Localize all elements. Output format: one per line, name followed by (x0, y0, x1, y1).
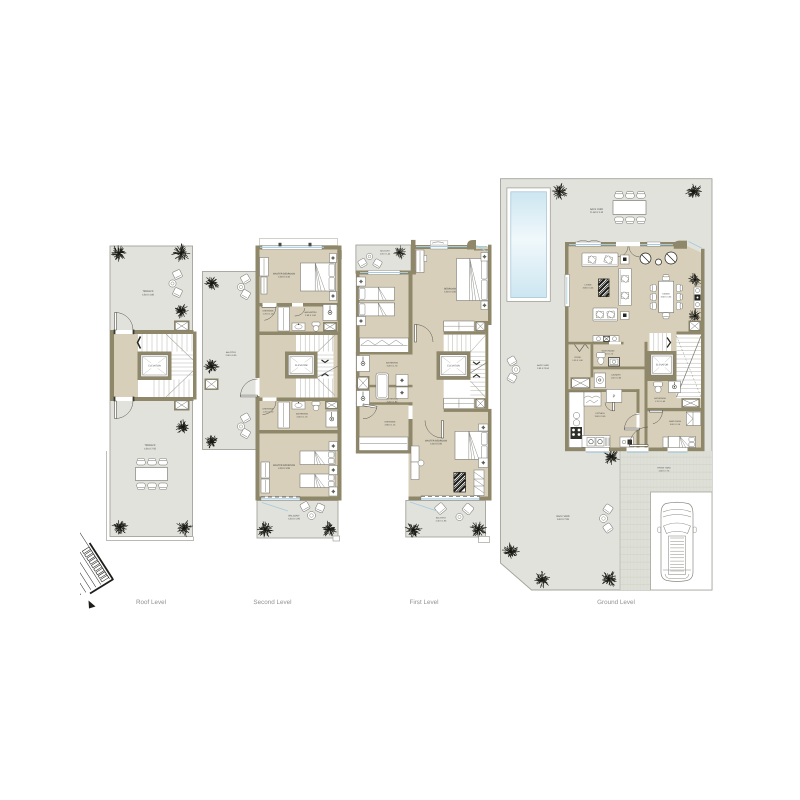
svg-text:4.30 X 4.05: 4.30 X 4.05 (444, 291, 456, 294)
svg-text:4.30 X 3.10: 4.30 X 3.10 (278, 276, 290, 279)
svg-text:3.00 X 2.15: 3.00 X 2.15 (670, 423, 681, 426)
svg-text:2.90 X 1.75: 2.90 X 1.75 (385, 424, 396, 427)
svg-text:3.60 X 4.35: 3.60 X 4.35 (661, 296, 672, 299)
svg-text:2.50 X 1.50: 2.50 X 1.50 (305, 314, 316, 317)
svg-text:ELEVATOR: ELEVATOR (656, 364, 669, 367)
svg-text:First Level: First Level (409, 599, 438, 606)
svg-text:BATHROOM: BATHROOM (296, 412, 308, 415)
svg-text:DRESSING: DRESSING (263, 407, 274, 410)
svg-text:1.70 X 1.60: 1.70 X 1.60 (655, 400, 666, 403)
svg-text:DRESSING: DRESSING (385, 420, 396, 423)
svg-text:1.30 X 1.90: 1.30 X 1.90 (572, 359, 583, 362)
svg-text:3.60 X 23.50: 3.60 X 23.50 (537, 367, 550, 370)
svg-text:3.60 X 3.40: 3.60 X 3.40 (595, 415, 606, 418)
svg-text:4.50 X 7.55: 4.50 X 7.55 (144, 447, 156, 450)
svg-text:9.40 X 7.95: 9.40 X 7.95 (557, 518, 569, 521)
svg-text:Roof Level: Roof Level (136, 599, 166, 606)
svg-text:DINING: DINING (662, 292, 670, 295)
svg-text:BATHROOM: BATHROOM (654, 397, 666, 400)
svg-text:WASH ROOM: WASH ROOM (602, 349, 615, 352)
svg-text:1.70 X 1.10: 1.70 X 1.10 (263, 313, 274, 316)
svg-text:2.05 X 1.45: 2.05 X 1.45 (380, 253, 391, 256)
svg-text:ELEVATOR: ELEVATOR (148, 365, 161, 368)
svg-text:BALCONY: BALCONY (436, 516, 447, 519)
svg-text:BALCONY: BALCONY (380, 249, 390, 252)
svg-text:BACK YARD: BACK YARD (590, 208, 603, 211)
svg-text:2.00 X 6.00: 2.00 X 6.00 (226, 354, 237, 357)
svg-text:2.50 X 1.70: 2.50 X 1.70 (297, 416, 308, 419)
svg-text:3.20 X 1.80: 3.20 X 1.80 (387, 401, 398, 404)
svg-text:BEDROOM: BEDROOM (444, 287, 456, 290)
svg-text:TERRACE: TERRACE (143, 290, 154, 293)
svg-text:ELEVATOR: ELEVATOR (295, 364, 308, 367)
svg-text:BACK YARD: BACK YARD (556, 515, 569, 518)
svg-text:BALCONY: BALCONY (289, 514, 300, 517)
svg-text:4.30 X 5.50: 4.30 X 5.50 (430, 443, 442, 446)
svg-text:MASTER BEDROOM: MASTER BEDROOM (425, 439, 447, 442)
svg-text:4.40 X 1.95: 4.40 X 1.95 (288, 518, 300, 521)
svg-text:BATHROOM: BATHROOM (386, 361, 398, 364)
svg-text:4.50 X 7.75: 4.50 X 7.75 (659, 470, 670, 473)
svg-text:BACK YARD: BACK YARD (537, 364, 549, 367)
svg-text:DRESSING: DRESSING (263, 309, 274, 312)
svg-text:MAID ROOM: MAID ROOM (669, 420, 681, 423)
svg-text:P: P (613, 394, 616, 399)
svg-text:LAUNDRY: LAUNDRY (611, 373, 621, 376)
svg-text:MASTER BEDROOM: MASTER BEDROOM (273, 272, 295, 275)
svg-text:FRONT YARD: FRONT YARD (657, 466, 671, 469)
svg-text:4.45 X 1.95: 4.45 X 1.95 (436, 520, 447, 523)
svg-text:3.60 X 4.25: 3.60 X 4.25 (583, 287, 594, 290)
svg-text:TERRACE: TERRACE (145, 444, 156, 447)
svg-text:LIVING: LIVING (585, 283, 592, 286)
svg-text:BALCONY: BALCONY (226, 351, 237, 354)
svg-text:Ground Level: Ground Level (597, 599, 635, 606)
svg-text:MASTER BEDROOM: MASTER BEDROOM (273, 464, 295, 467)
svg-text:11.60 X 3.10: 11.60 X 3.10 (590, 211, 604, 214)
svg-text:1.60 X 2.60: 1.60 X 2.60 (611, 377, 622, 380)
svg-text:Second Level: Second Level (253, 599, 291, 606)
svg-text:3.20 X 1.70: 3.20 X 1.70 (387, 365, 398, 368)
svg-text:4.30 X 3.55: 4.30 X 3.55 (278, 467, 290, 470)
svg-text:ELEVATOR: ELEVATOR (447, 364, 460, 367)
svg-text:STORE: STORE (574, 356, 582, 359)
svg-text:KITCHEN: KITCHEN (595, 412, 605, 415)
svg-text:BATHROOM: BATHROOM (305, 311, 317, 314)
svg-text:4.50 X 4.85: 4.50 X 4.85 (142, 293, 154, 296)
